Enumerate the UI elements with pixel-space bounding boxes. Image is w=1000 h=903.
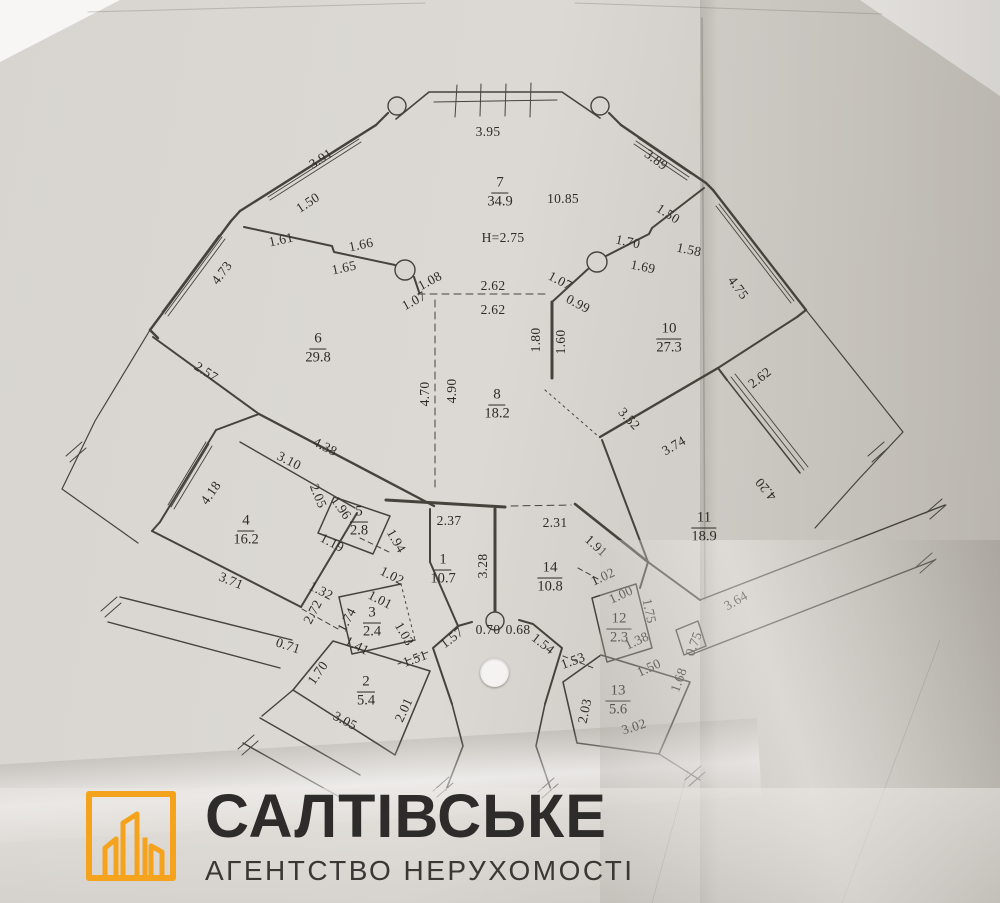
hole-punch	[480, 658, 509, 687]
agency-logo: САЛТІВСЬКЕ АГЕНТСТВО НЕРУХОМОСТІ	[85, 786, 635, 885]
floorplan-drawing	[0, 0, 1000, 903]
agency-logo-text: САЛТІВСЬКЕ АГЕНТСТВО НЕРУХОМОСТІ	[205, 786, 635, 885]
floorplan-photo: 3.953.911.501.611.661.651.081.072.622.62…	[0, 0, 1000, 903]
agency-logo-icon	[85, 790, 177, 882]
agency-tagline: АГЕНТСТВО НЕРУХОМОСТІ	[205, 857, 635, 885]
agency-name: САЛТІВСЬКЕ	[205, 786, 635, 847]
